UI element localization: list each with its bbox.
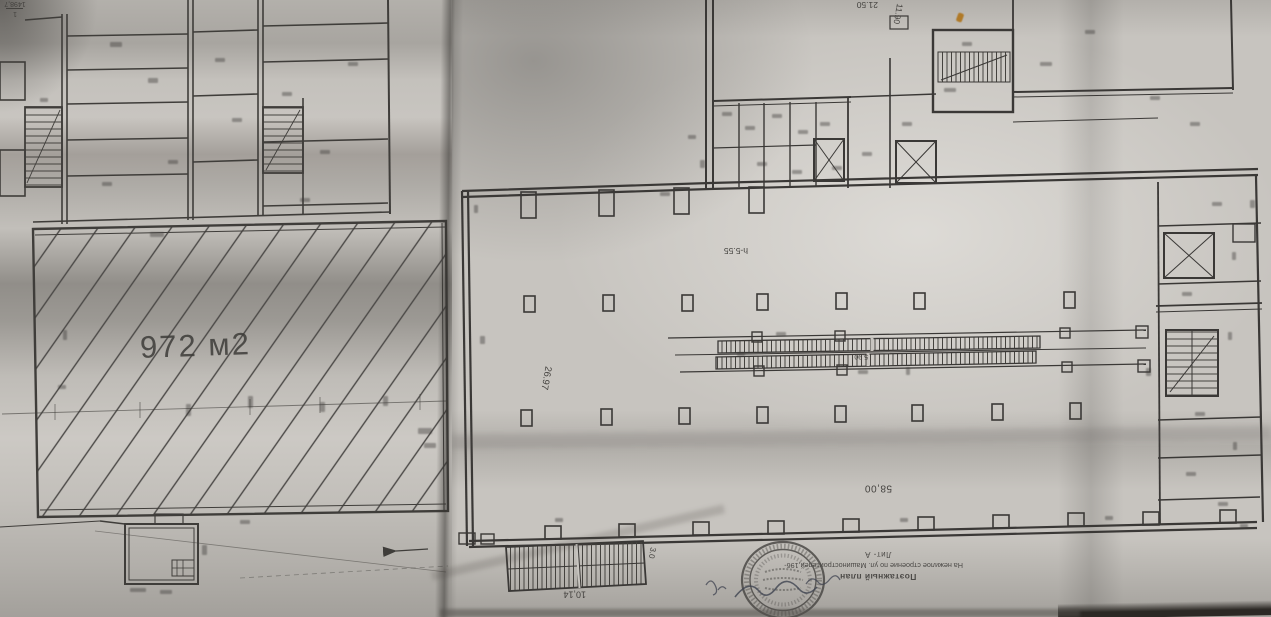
illegible-label <box>1040 62 1052 66</box>
illegible-label <box>962 42 972 46</box>
illegible-label <box>58 385 66 389</box>
illegible-label <box>1190 122 1200 126</box>
illegible-label <box>1212 202 1222 206</box>
room-area: 1498,7 <box>4 0 25 7</box>
illegible-label <box>383 396 388 406</box>
illegible-label <box>300 198 310 202</box>
illegible-label <box>40 98 48 102</box>
illegible-label <box>772 114 782 118</box>
illegible-label <box>902 122 912 126</box>
hall-height-label: h-5.55 <box>708 246 748 255</box>
stairwell <box>1166 330 1218 396</box>
illegible-label <box>215 58 225 62</box>
left-bottom-room <box>0 514 448 584</box>
direction-arrow <box>396 549 428 551</box>
right-top-rooms <box>706 0 1233 189</box>
illegible-label <box>1195 412 1205 416</box>
illegible-label <box>110 42 122 47</box>
illegible-label <box>1146 368 1151 376</box>
illegible-label <box>320 402 325 412</box>
illegible-label <box>1186 472 1196 476</box>
illegible-label <box>202 545 207 555</box>
illegible-label <box>424 443 436 448</box>
fraction-bar <box>7 8 24 9</box>
illegible-label <box>776 332 786 336</box>
illegible-label <box>320 150 330 154</box>
escalator-dimension: 5.90 <box>844 352 868 359</box>
illegible-label <box>900 518 908 522</box>
hatched-hall <box>2 221 448 517</box>
right-side-rooms <box>1156 182 1262 525</box>
illegible-label <box>832 166 842 170</box>
illegible-label <box>798 130 808 134</box>
blueprint-photo: 972 м2 h-5.55 58,00 26.97 1 1498,7 21.50… <box>0 0 1271 617</box>
illegible-label <box>248 396 253 408</box>
elevator-shaft <box>814 139 844 181</box>
illegible-label <box>130 588 146 592</box>
illegible-label <box>1250 200 1255 208</box>
illegible-label <box>63 330 67 340</box>
illegible-label <box>418 428 432 434</box>
hall-length-label: 58,00 <box>856 482 892 493</box>
elevator-shaft <box>1164 233 1214 278</box>
illegible-label <box>186 404 191 416</box>
hall-area-label: 972 м2 <box>139 328 251 364</box>
illegible-label <box>906 367 910 375</box>
stairwell <box>25 107 62 187</box>
left-top-rooms <box>0 0 390 224</box>
illegible-label <box>1105 516 1113 520</box>
title-block-line1: Поэтажный план <box>793 572 963 581</box>
illegible-label <box>1218 502 1228 506</box>
illegible-label <box>1228 332 1232 340</box>
illegible-label <box>858 370 868 374</box>
illegible-label <box>474 205 478 213</box>
illegible-label <box>1085 30 1095 34</box>
illegible-label <box>555 518 563 522</box>
title-block-line3: Лит- А <box>793 549 963 557</box>
illegible-label <box>722 112 732 116</box>
illegible-label <box>737 352 745 356</box>
table-edge-shadow <box>1058 600 1271 617</box>
illegible-label <box>745 126 755 130</box>
illegible-label <box>1240 524 1248 528</box>
illegible-label <box>944 88 956 92</box>
illegible-label <box>150 232 164 237</box>
illegible-label <box>1182 292 1192 296</box>
illegible-label <box>1150 96 1160 100</box>
handwritten-mark <box>706 581 726 595</box>
paper-edge-shadow <box>440 609 1080 617</box>
room-number: 1 <box>13 10 17 17</box>
illegible-label <box>820 122 830 126</box>
stairwell <box>263 107 303 173</box>
illegible-label <box>660 192 670 196</box>
ramp-length-label: 10,14 <box>552 589 586 598</box>
illegible-label <box>160 590 172 594</box>
illegible-label <box>282 92 292 96</box>
dimension-top: 21.50 <box>846 0 878 9</box>
stairwell <box>933 30 1013 112</box>
title-block-line2: На нежилое строение по ул. Машиностроите… <box>793 561 963 569</box>
illegible-label <box>348 62 358 66</box>
illegible-label <box>148 78 158 83</box>
illegible-label <box>168 160 178 164</box>
room-number-area-label: 1 1498,7 <box>0 0 30 17</box>
right-plan-drawing <box>459 0 1263 617</box>
illegible-label <box>1232 252 1236 260</box>
title-block: Поэтажный план На нежилое строение по ул… <box>793 549 963 581</box>
illegible-label <box>102 182 112 186</box>
illegible-label <box>688 135 696 139</box>
illegible-label <box>700 160 705 168</box>
illegible-label <box>232 118 242 122</box>
left-plan-drawing <box>0 0 448 584</box>
illegible-label <box>1233 442 1237 450</box>
illegible-label <box>480 336 485 344</box>
illegible-label <box>757 162 767 166</box>
illegible-label <box>862 152 872 156</box>
illegible-label <box>792 170 802 174</box>
illegible-label <box>240 520 250 524</box>
